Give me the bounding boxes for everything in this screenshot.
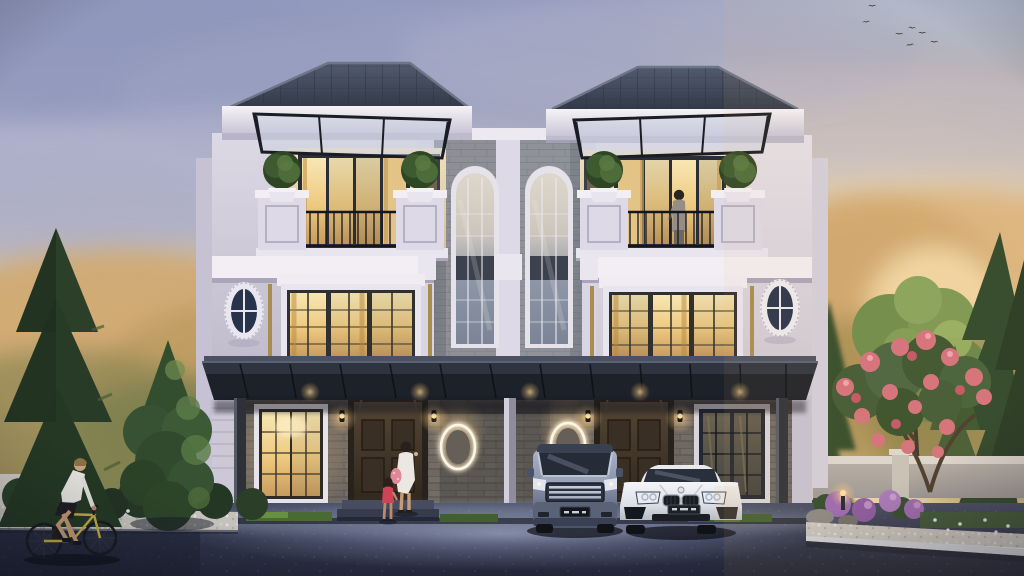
architectural-rendering bbox=[0, 0, 1024, 576]
vignette-overlay bbox=[0, 0, 1024, 576]
